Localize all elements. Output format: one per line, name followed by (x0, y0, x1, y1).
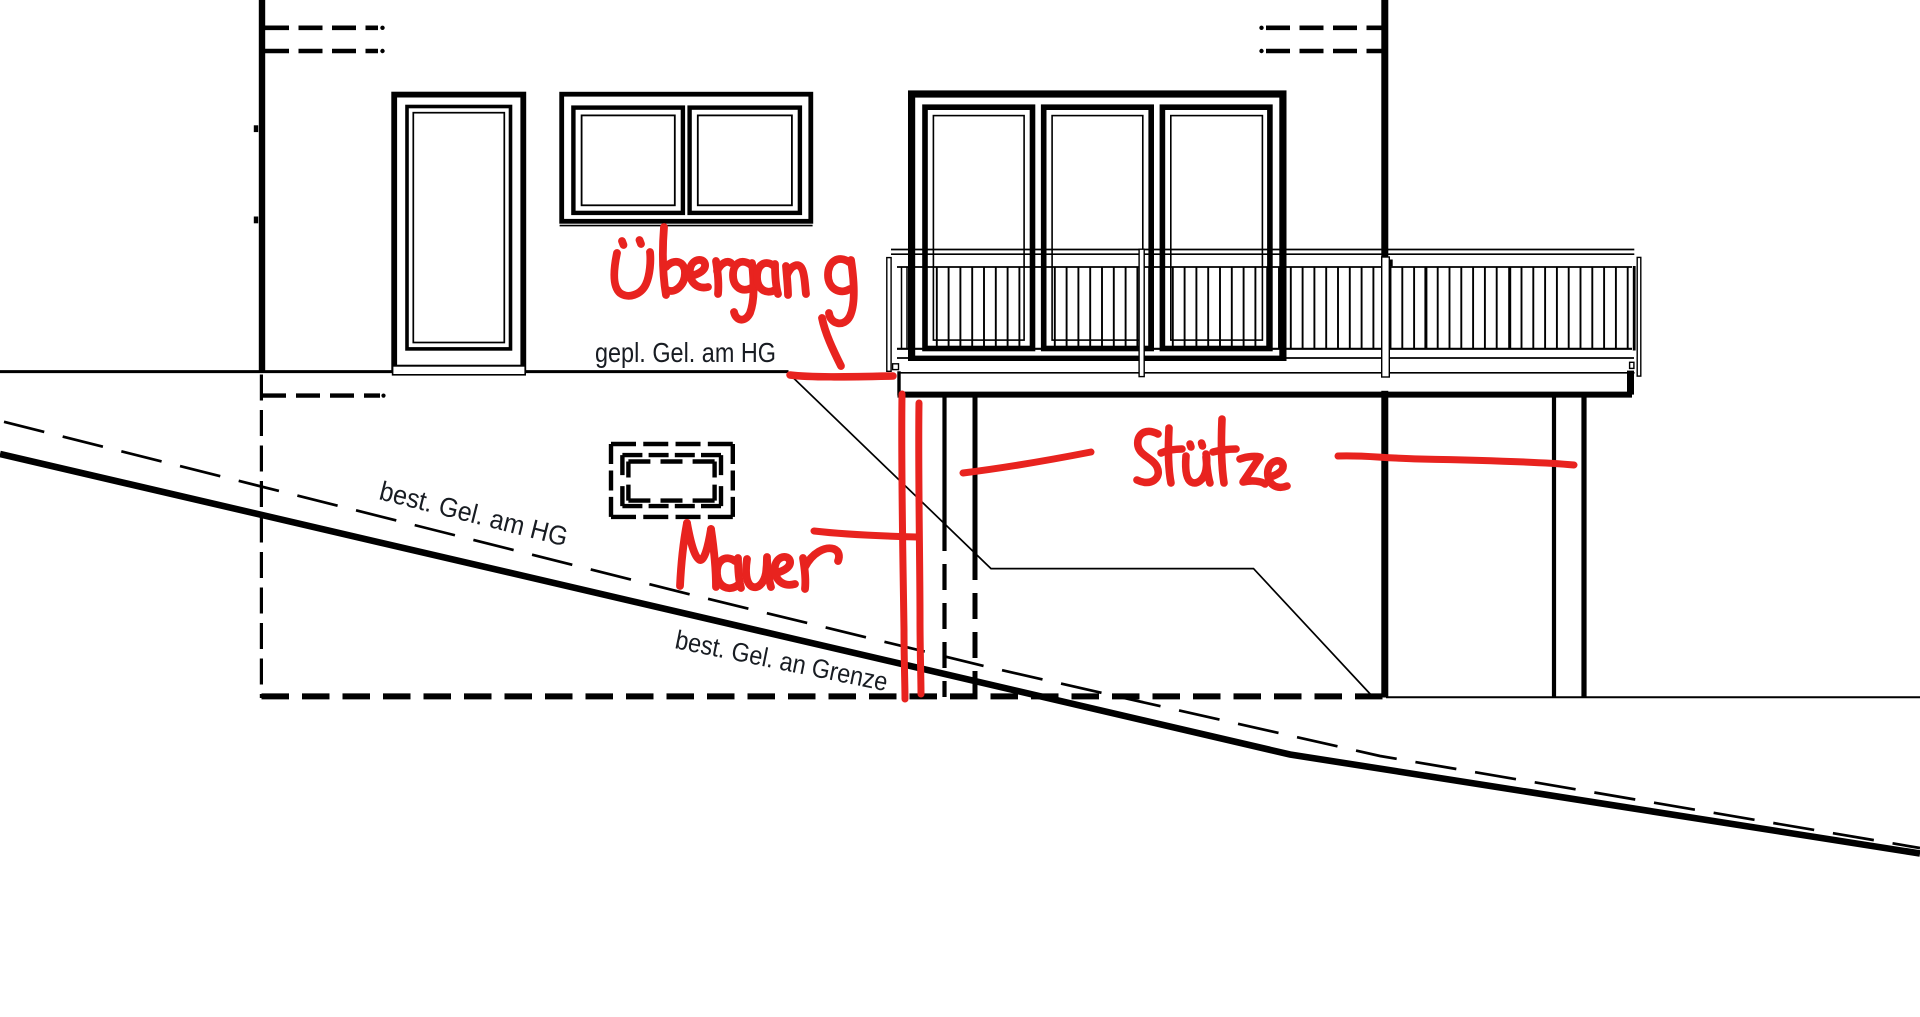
svg-text:gepl. Gel. am HG: gepl. Gel. am HG (595, 337, 776, 368)
